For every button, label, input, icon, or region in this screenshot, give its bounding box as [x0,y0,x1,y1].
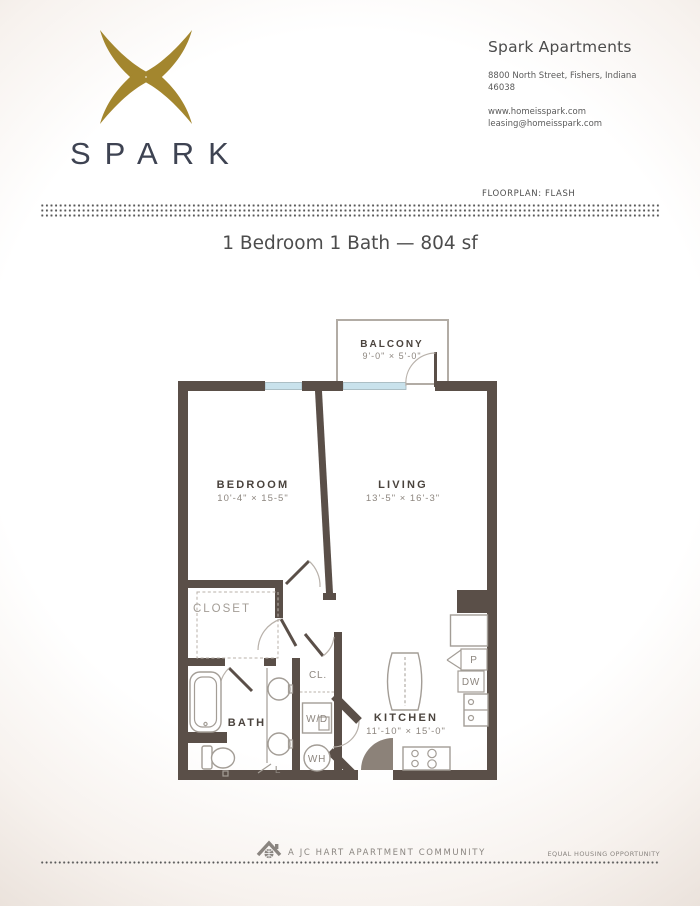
closet-label: CLOSET [193,603,251,615]
property-email: leasing@homeisspark.com [488,119,602,129]
vanity-sink-1 [268,678,290,700]
spark-x-claws [100,30,192,124]
wall-top-mid [302,381,343,391]
cl-closet-door-leaf [305,634,323,656]
water-heater-label: WH [308,754,326,765]
walls [178,381,497,780]
page: SPARK Spark Apartments 8800 North Street… [0,0,700,906]
pantry-door-line-1 [447,650,461,660]
jchart-house-icon [256,840,282,860]
plan-title: 1 Bedroom 1 Bath — 804 sf [0,233,700,254]
wall-chase-block [457,590,497,613]
floorplan-drawing: BALCONY 9'-0" × 5'-0" [160,300,520,800]
closet-door-arc [258,619,281,650]
header-dotted-separator [40,203,660,217]
wall-bedroom-bottom [188,580,282,588]
wall-tub-nook [188,732,227,743]
pantry-door-line-2 [447,660,461,669]
spark-x-icon [90,30,202,124]
bedroom-dims: 10'-4" × 15-5" [217,493,288,504]
linen-label: L [275,765,281,776]
wall-bath-utility [292,658,300,780]
bedroom-door-leaf [286,561,309,584]
wall-divider-endcap [323,593,336,600]
footer-dotted-separator [40,861,660,864]
address-line1: 8800 North Street, Fishers, Indiana [488,71,637,81]
kitchen-dims: 11'-10" × 15'-0" [366,726,446,737]
property-title: Spark Apartments [488,38,678,56]
property-address: 8800 North Street, Fishers, Indiana 4603… [488,70,678,94]
living-window [343,383,406,390]
property-website: www.homeisspark.com [488,107,586,117]
wall-left [178,381,188,780]
cl-closet-label: CL. [309,670,327,681]
balcony-label: BALCONY [360,339,423,350]
stove [403,747,450,770]
header-info: Spark Apartments 8800 North Street, Fish… [488,38,678,130]
toilet-bowl [212,748,235,768]
equal-housing-label: EQUAL HOUSING OPPORTUNITY [548,850,660,858]
cl-closet-door-arc [323,637,334,656]
toilet-tank [202,746,212,769]
vanity-sink-2 [268,733,290,755]
community-label: A JC HART APARTMENT COMMUNITY [288,848,486,858]
wall-bedroom-living-divider [315,391,333,593]
brand-wordmark: SPARK [60,136,232,172]
closet-door-leaf [281,619,296,646]
washer-dryer-label: W/D [306,714,328,725]
wall-bath-top-left [188,658,225,666]
wall-closet-right [275,580,283,618]
kitchen-label: KITCHEN [374,712,438,724]
wall-bath-top-right [264,658,276,666]
wall-bottom-right [393,770,497,780]
house-chimney [275,844,278,849]
refrigerator [451,615,488,646]
brand-logo: SPARK [60,30,232,172]
bath-label: BATH [228,717,267,729]
wall-top-left [178,381,265,391]
dishwasher-label: DW [462,677,480,688]
pantry-label: P [470,655,477,666]
address-line2: 46038 [488,83,515,93]
wall-bottom-left [178,770,358,780]
closet-dashed-outline [197,592,278,658]
bath-door-leaf [229,668,252,691]
entry-door-swing [361,738,393,770]
floorplan-name-label: FLOORPLAN: FLASH [482,189,575,199]
balcony-dims: 9'-0" × 5'-0" [362,351,421,361]
kitchen-fixtures [388,615,489,770]
bedroom-label: BEDROOM [217,479,290,491]
living-label: LIVING [378,479,428,491]
bedroom-window [265,383,302,390]
living-dims: 13'-5" × 16'-3" [366,493,440,504]
bedroom-door-arc [309,561,320,587]
property-contact: www.homeisspark.com leasing@homeisspark.… [488,106,678,130]
